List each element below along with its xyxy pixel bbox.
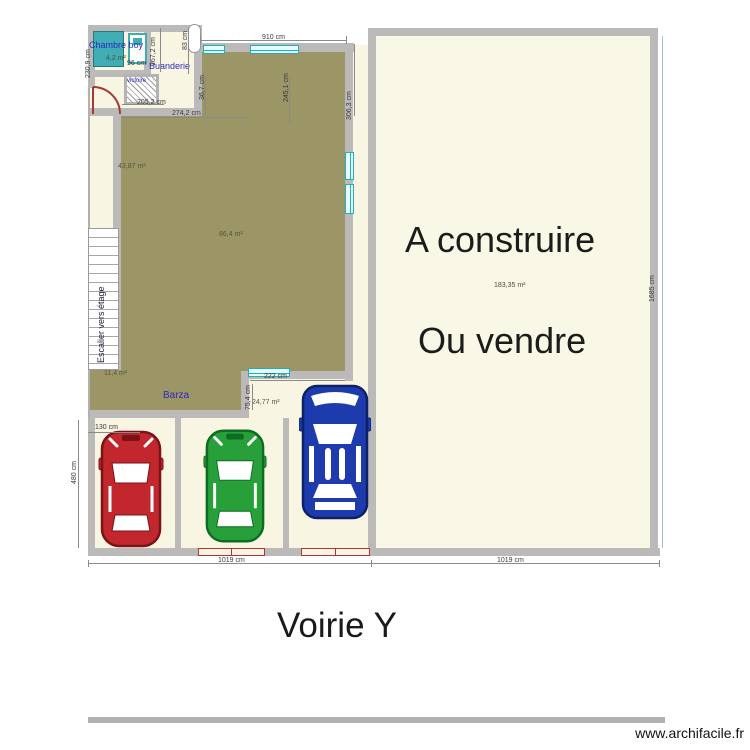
gate[interactable]: [198, 548, 265, 556]
dimension-line: [662, 36, 663, 548]
dimension-label: 1019 cm: [497, 557, 524, 564]
dimension-label: 480 cm: [71, 461, 78, 484]
dimension-line: [252, 384, 253, 410]
main-building-roof[interactable]: [195, 50, 345, 371]
area-label: 24,77 m²: [252, 399, 280, 406]
dimension-line: [122, 117, 248, 118]
dimension-line: [250, 380, 345, 381]
right-parcel[interactable]: [368, 28, 658, 556]
wall-bottom: [88, 548, 660, 556]
area-label: 86,4 m²: [219, 231, 243, 238]
window[interactable]: [345, 152, 354, 180]
dimension-label: 306,3 cm: [346, 91, 353, 120]
left-wing-roof[interactable]: [121, 115, 197, 410]
gate[interactable]: [301, 548, 370, 556]
watermark-link[interactable]: www.archifacile.fr: [635, 726, 744, 740]
parcel-right-text-line2: Ou vendre: [418, 323, 586, 359]
dimension-label: 245,1 cm: [283, 73, 290, 102]
floor-plan-canvas: Escalier vers étage victoire: [0, 0, 750, 750]
car-red-icon[interactable]: [98, 430, 164, 548]
door-arc-icon[interactable]: [89, 85, 121, 117]
room-label-barza[interactable]: Barza: [163, 391, 189, 401]
dimension-tick: [200, 36, 201, 44]
dimension-label: 130 cm: [95, 424, 118, 431]
room-label-chambre-boy[interactable]: Chambre boy: [89, 41, 143, 50]
dimension-tick: [371, 560, 372, 567]
window[interactable]: [203, 45, 225, 54]
area-label: 4,2 m²: [106, 55, 126, 62]
window[interactable]: [345, 184, 354, 214]
wall: [88, 410, 249, 418]
street-label: Voirie Y: [277, 608, 397, 643]
dimension-line: [78, 420, 79, 548]
dimension-label: 75,4 cm: [245, 385, 252, 410]
parking-divider-wall: [283, 418, 289, 548]
dimension-label: 167,2 cm: [150, 37, 157, 66]
wall: [88, 418, 95, 548]
area-label: 43,87 m²: [118, 163, 146, 170]
dimension-label: 910 cm: [262, 34, 285, 41]
parcel-right-text-line1: A construire: [405, 222, 595, 258]
room-label-wc[interactable]: victoire: [127, 78, 146, 84]
area-label: 11,4 m²: [104, 370, 127, 377]
dimension-line: [88, 432, 140, 433]
car-green-icon[interactable]: [203, 427, 267, 545]
dimension-tick: [346, 36, 347, 44]
window[interactable]: [250, 45, 299, 54]
dimension-label: 1685 cm: [649, 275, 656, 302]
dimension-label: 1019 cm: [218, 557, 245, 564]
dimension-label: 96 cm: [127, 60, 146, 67]
stairs-label: Escalier vers étage: [97, 286, 106, 363]
dimension-tick: [659, 560, 660, 567]
dimension-label: 36,7 cm: [199, 75, 206, 100]
dimension-label: 83 cm: [182, 31, 189, 50]
car-blue-icon[interactable]: [299, 384, 371, 520]
dimension-line: [354, 44, 355, 116]
dimension-label: 230,9 cm: [85, 49, 92, 78]
dimension-label: 205,2 cm: [137, 99, 166, 106]
dimension-label: 222 cm: [264, 373, 287, 380]
area-label: 183,35 m²: [494, 282, 526, 289]
dimension-tick: [88, 560, 89, 567]
footer-divider: [88, 717, 665, 723]
parking-divider-wall: [175, 418, 181, 548]
dimension-label: 274,2 cm: [172, 110, 201, 117]
dimension-line: [160, 28, 161, 72]
